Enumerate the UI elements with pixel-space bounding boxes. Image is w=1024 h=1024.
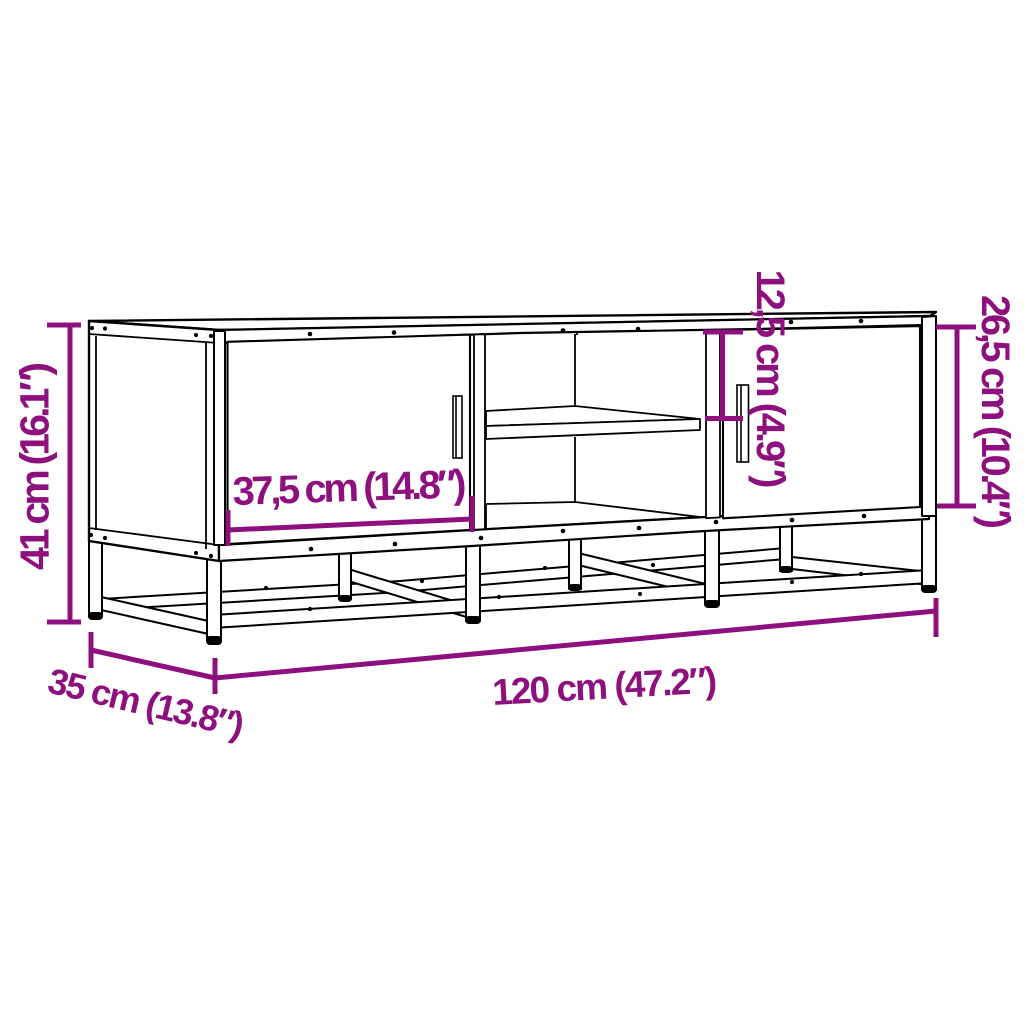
svg-text:41 cm (16.1″): 41 cm (16.1″)	[12, 362, 58, 570]
svg-text:12,5 cm (4.9″): 12,5 cm (4.9″)	[748, 270, 792, 489]
svg-text:26,5 cm (10.4″): 26,5 cm (10.4″)	[973, 295, 1017, 529]
svg-text:37,5 cm (14.8″): 37,5 cm (14.8″)	[232, 462, 467, 514]
